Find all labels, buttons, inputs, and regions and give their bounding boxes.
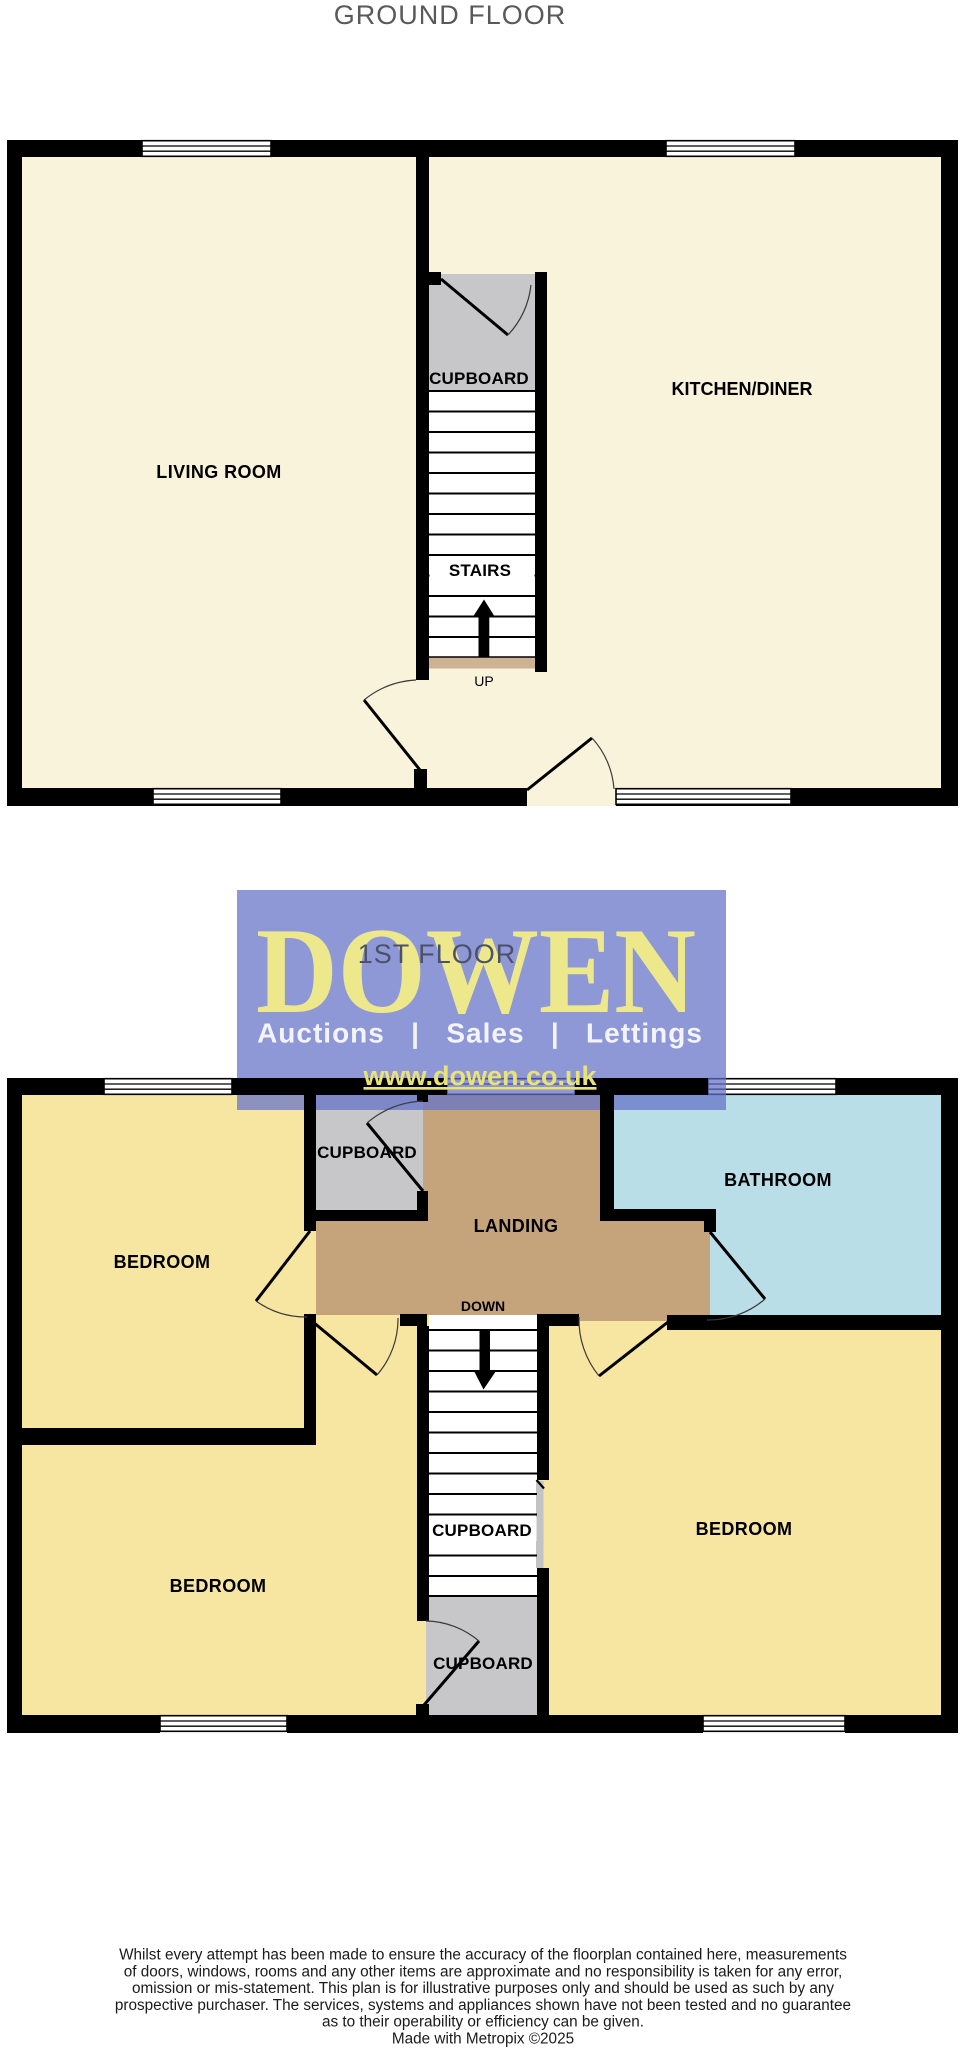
svg-text:LIVING ROOM: LIVING ROOM [156,462,281,482]
svg-text:DOWN: DOWN [461,1298,505,1314]
svg-text:as to their operability or eff: as to their operability or efficiency ca… [322,2014,644,2031]
svg-text:Whilst every attempt has been: Whilst every attempt has been made to en… [119,1947,847,1964]
svg-text:CUPBOARD: CUPBOARD [317,1143,417,1162]
svg-text:www.dowen.co.uk: www.dowen.co.uk [362,1061,597,1091]
svg-text:Made with Metropix ©2025: Made with Metropix ©2025 [392,2031,574,2048]
svg-text:GROUND FLOOR: GROUND FLOOR [334,0,567,30]
svg-text:1ST FLOOR: 1ST FLOOR [358,939,517,969]
svg-text:of doors, windows, rooms and a: of doors, windows, rooms and any other i… [124,1963,842,1980]
svg-text:BATHROOM: BATHROOM [724,1170,832,1190]
svg-text:LANDING: LANDING [474,1216,559,1236]
svg-text:BEDROOM: BEDROOM [696,1519,793,1539]
svg-text:BEDROOM: BEDROOM [114,1252,211,1272]
svg-text:BEDROOM: BEDROOM [170,1576,267,1596]
svg-text:omission or mis-statement. Thi: omission or mis-statement. This plan is … [132,1980,834,1997]
svg-text:UP: UP [474,673,493,689]
svg-text:prospective purchaser. The ser: prospective purchaser. The services, sys… [115,1997,851,2014]
svg-text:CUPBOARD: CUPBOARD [433,1654,533,1673]
svg-text:KITCHEN/DINER: KITCHEN/DINER [671,379,812,399]
svg-text:CUPBOARD: CUPBOARD [429,369,529,388]
svg-text:STAIRS: STAIRS [449,561,511,580]
svg-text:Auctions | Sales | Let: Auctions | Sales | Lettings [257,1018,703,1049]
svg-text:CUPBOARD: CUPBOARD [432,1521,532,1540]
